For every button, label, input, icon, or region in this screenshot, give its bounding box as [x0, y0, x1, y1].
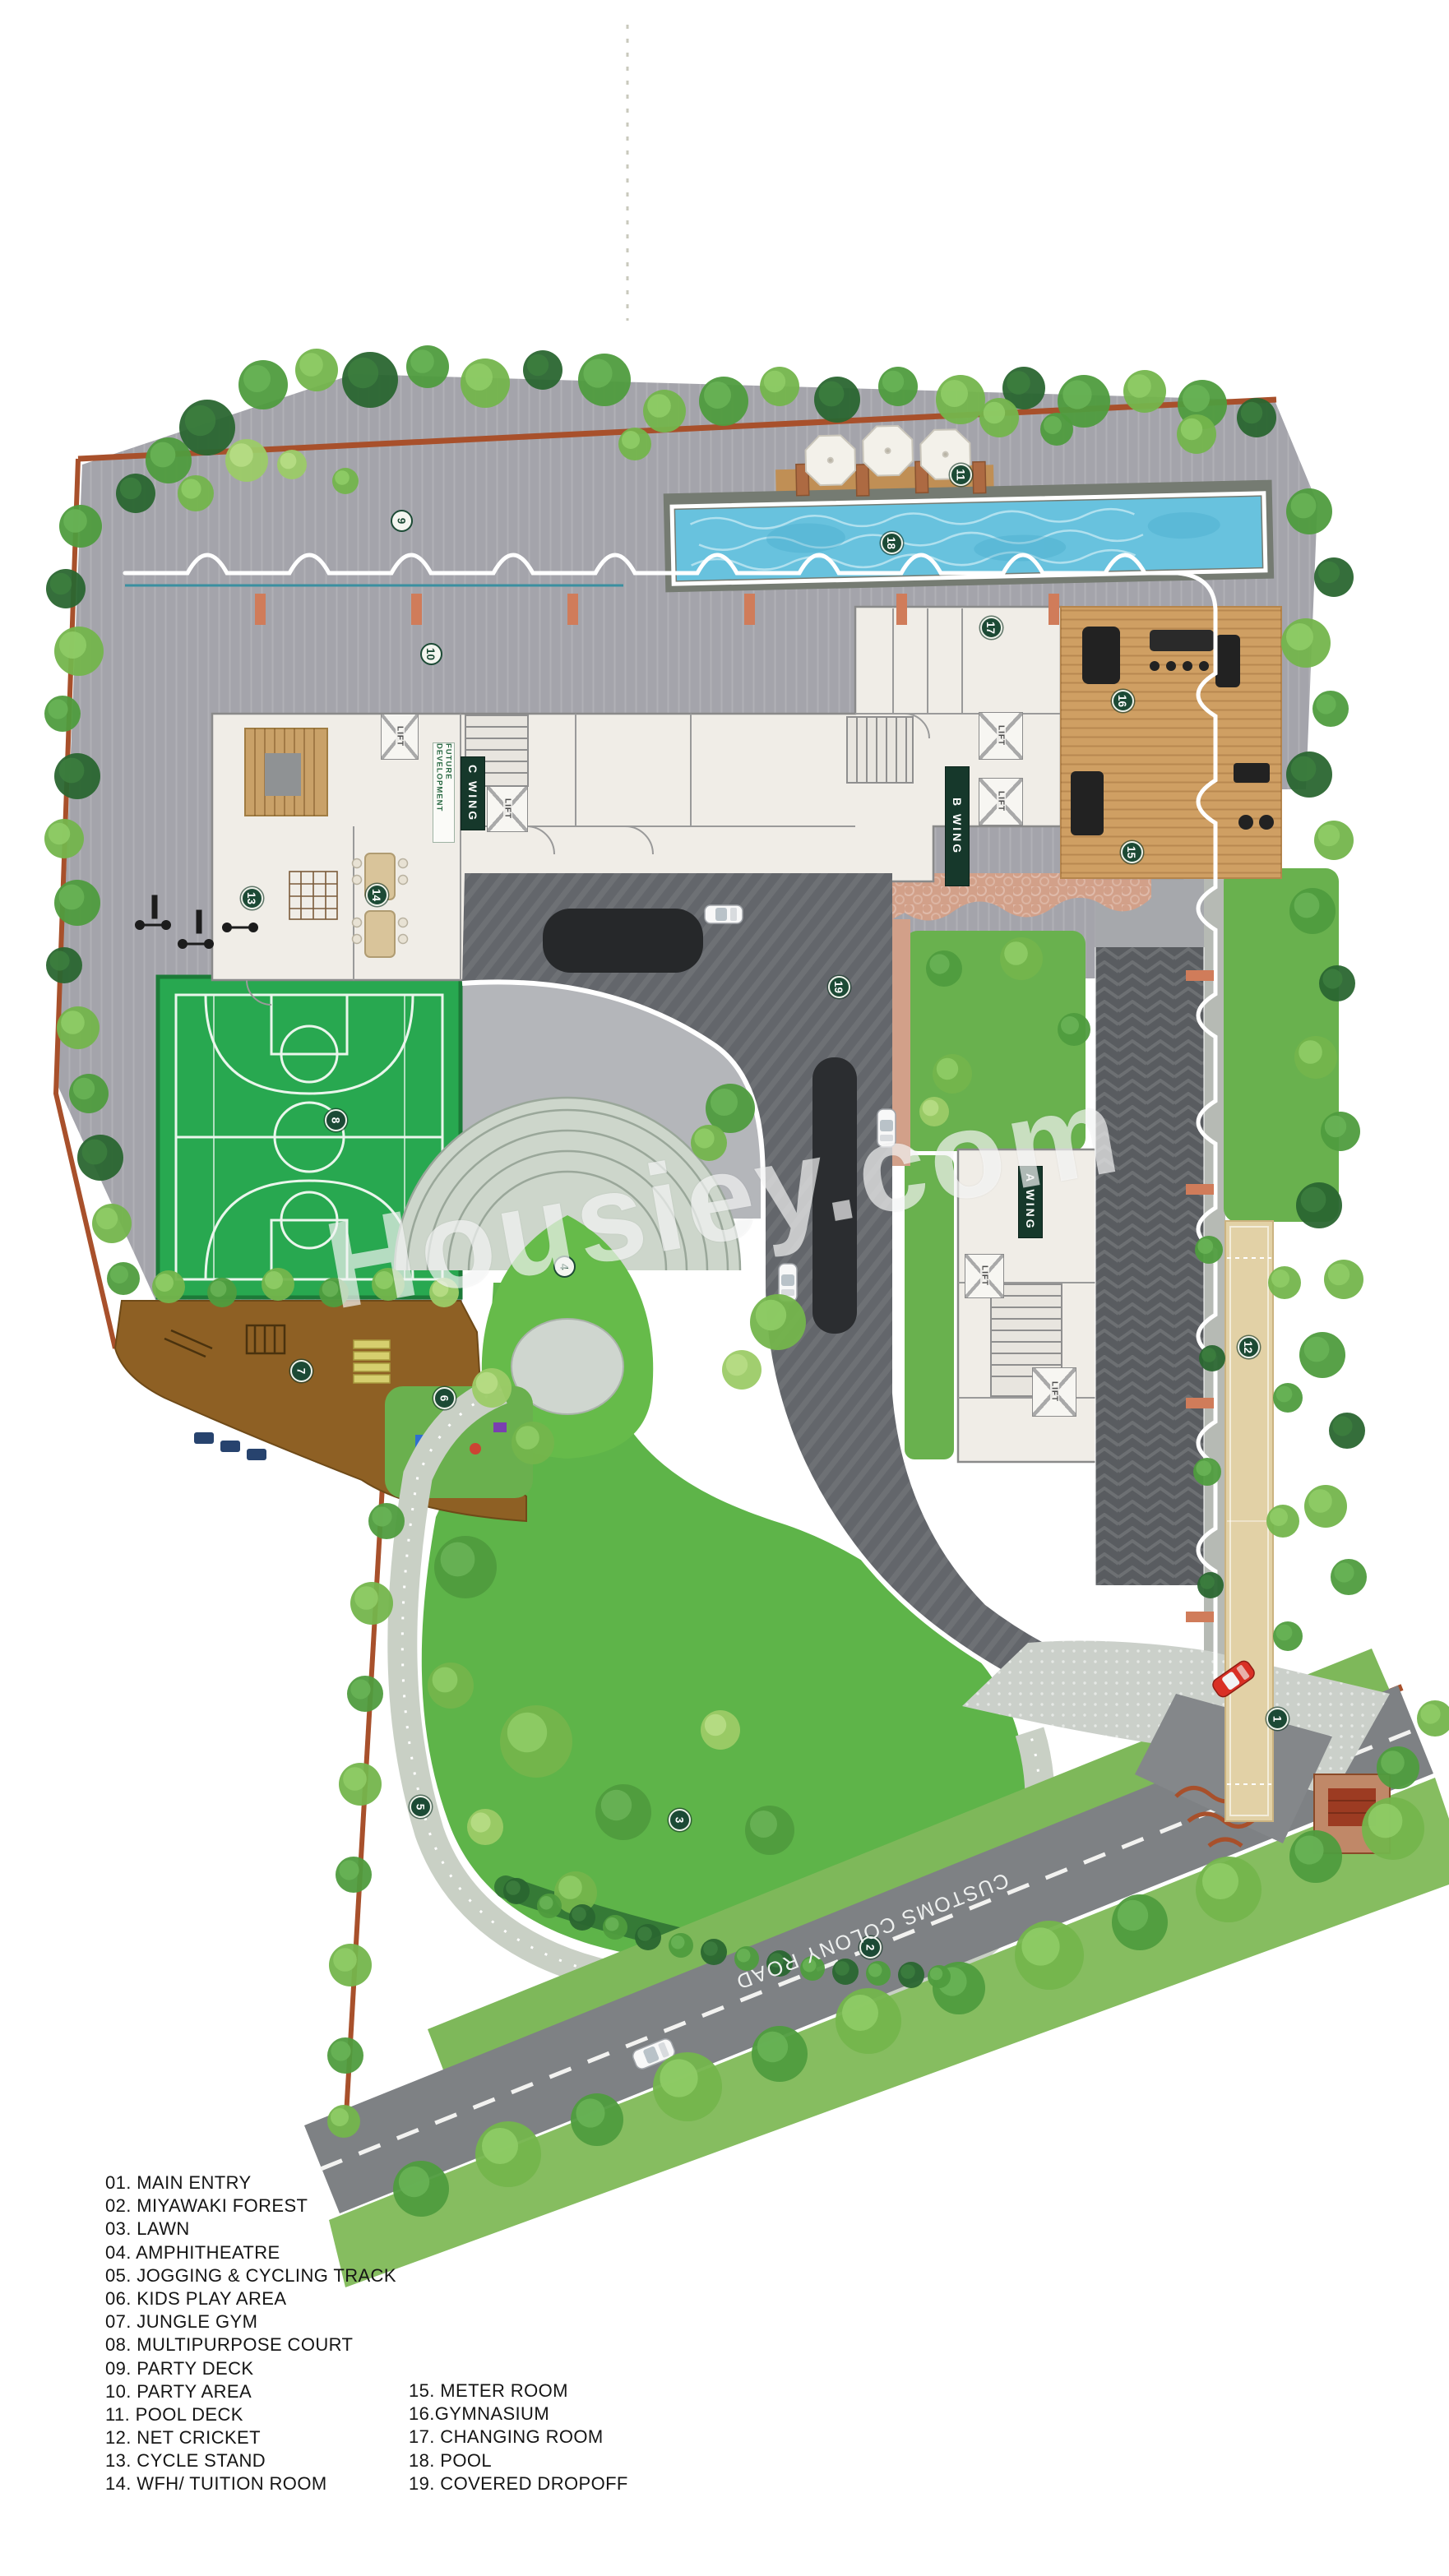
legend-item: 08. MULTIPURPOSE COURT [105, 2333, 396, 2356]
legend-column-1: 01. MAIN ENTRY02. MIYAWAKI FOREST03. LAW… [105, 2171, 396, 2496]
white-car [877, 1109, 896, 1147]
legend-item: 17. CHANGING ROOM [409, 2426, 628, 2449]
legend-item: 19. COVERED DROPOFF [409, 2472, 628, 2495]
legend-column-2: 15. METER ROOM16.GYMNASIUM17. CHANGING R… [409, 2379, 628, 2495]
legend-item: 11. POOL DECK [105, 2403, 396, 2426]
entry-canopy [543, 909, 703, 973]
legend-item: 06. KIDS PLAY AREA [105, 2287, 396, 2310]
legend-item: 14. WFH/ TUITION ROOM [105, 2472, 396, 2495]
gymnasium-floor [1061, 607, 1281, 878]
legend-item: 13. CYCLE STAND [105, 2449, 396, 2472]
legend-item: 15. METER ROOM [409, 2379, 628, 2403]
legend-item: 09. PARTY DECK [105, 2357, 396, 2380]
legend-item: 10. PARTY AREA [105, 2380, 396, 2403]
site-plan-page: C WINGB WINGA WING FUTURE DEVELOPMENT LI… [0, 0, 1449, 2576]
legend-item: 07. JUNGLE GYM [105, 2310, 396, 2333]
legend-item: 01. MAIN ENTRY [105, 2171, 396, 2194]
legend-item: 03. LAWN [105, 2218, 396, 2241]
legend-item: 16.GYMNASIUM [409, 2403, 628, 2426]
legend-item: 12. NET CRICKET [105, 2426, 396, 2449]
legend-item: 04. AMPHITHEATRE [105, 2241, 396, 2264]
covered-dropoff-roof [1095, 947, 1204, 1585]
sauna-room [245, 728, 327, 816]
white-car [705, 905, 743, 923]
legend-item: 05. JOGGING & CYCLING TRACK [105, 2264, 396, 2287]
legend-item: 02. MIYAWAKI FOREST [105, 2194, 396, 2218]
legend-item: 18. POOL [409, 2449, 628, 2472]
covered-walkway [812, 1057, 857, 1334]
net-cricket-pitch [1225, 1221, 1273, 1821]
